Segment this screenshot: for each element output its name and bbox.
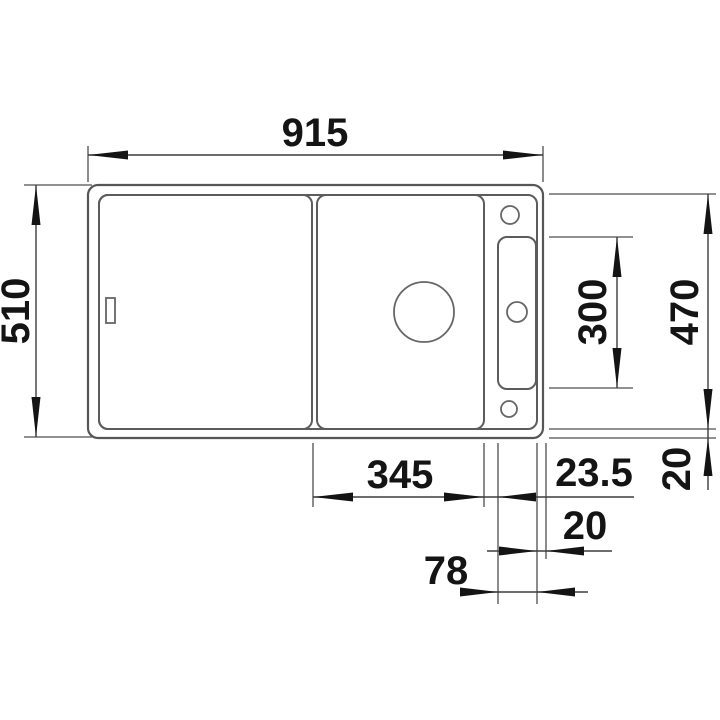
accessory-tray-recess xyxy=(498,237,536,389)
dim-tray-length: 300 xyxy=(549,237,633,388)
dim-overall-depth: 510 xyxy=(0,185,92,437)
arrowhead-left-outside xyxy=(498,493,536,502)
drainboard-area xyxy=(99,195,312,429)
dim-inner-depth-label: 470 xyxy=(663,279,707,346)
dim-tray-width: 78 xyxy=(424,549,588,597)
dim-bowl-to-tray-label: 23.5 xyxy=(555,451,633,495)
dim-tray-to-edge: 20 xyxy=(487,504,612,556)
dim-tray-length-label: 300 xyxy=(571,279,615,346)
arrowhead-down xyxy=(704,389,713,429)
arrowhead-up-small xyxy=(704,438,713,476)
arrowhead-right xyxy=(503,151,543,160)
dim-overall-width-label: 915 xyxy=(282,111,349,155)
dim-overall-depth-label: 510 xyxy=(0,278,38,345)
arrowhead-down xyxy=(613,348,622,388)
arrowhead-right-outside xyxy=(499,547,537,556)
arrowhead-up xyxy=(704,194,713,234)
technical-drawing-canvas: 915 510 300 470 20 xyxy=(0,0,720,720)
tap-hole-top xyxy=(501,206,519,224)
arrowhead-left-outside xyxy=(537,588,575,597)
arrowhead-left xyxy=(88,151,128,160)
arrowhead-right xyxy=(444,493,484,502)
dim-tray-to-edge-label: 20 xyxy=(563,504,608,548)
arrowhead-up xyxy=(613,237,622,277)
sink-dimension-drawing: 915 510 300 470 20 xyxy=(0,0,720,720)
main-bowl xyxy=(317,195,484,429)
tap-hole-middle xyxy=(507,302,527,322)
overflow-mark xyxy=(106,298,115,323)
sink-outer-edge xyxy=(88,185,543,438)
arrowhead-up xyxy=(32,185,41,225)
dim-tray-width-label: 78 xyxy=(424,549,469,593)
arrowhead-left xyxy=(313,493,353,502)
arrowhead-down xyxy=(32,397,41,437)
tap-hole-bottom xyxy=(501,401,517,417)
sink-plan-view xyxy=(88,185,543,438)
dim-bowl-width-label: 345 xyxy=(367,453,434,497)
dim-overall-width: 915 xyxy=(88,111,543,182)
dim-rim-bottom-label: 20 xyxy=(655,447,699,492)
drain-hole xyxy=(394,282,454,342)
